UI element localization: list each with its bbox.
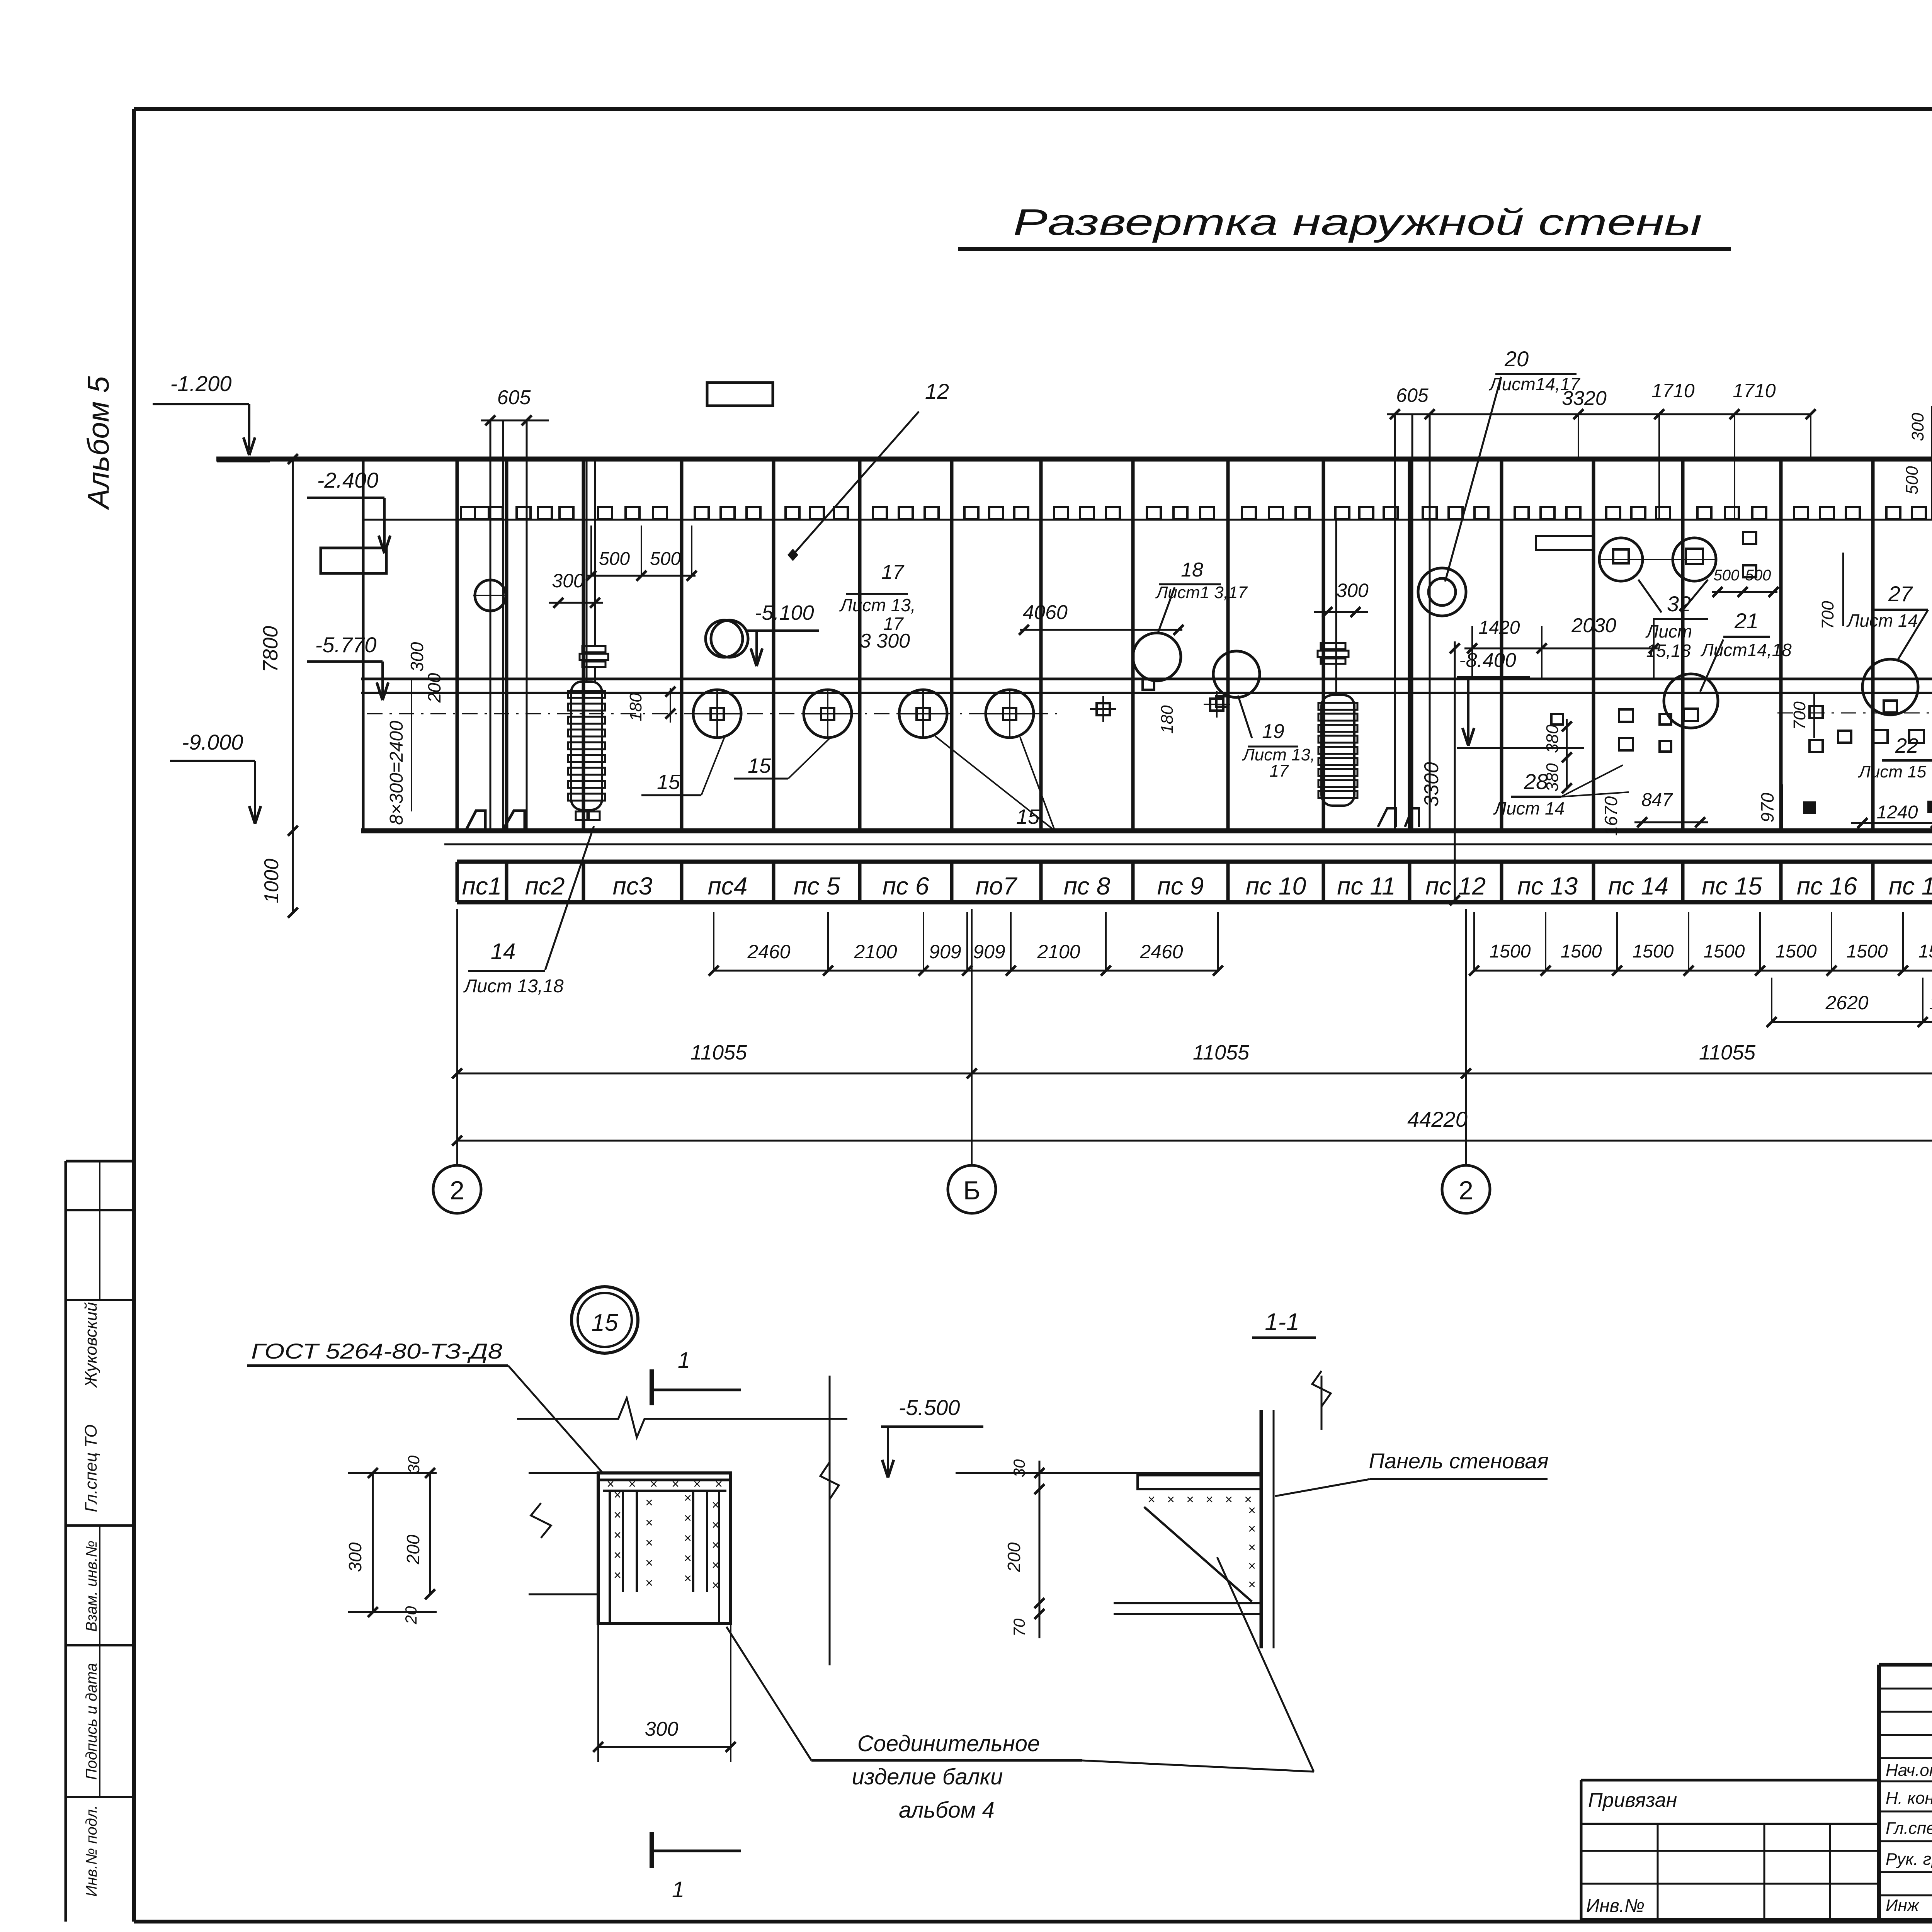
svg-text:пс 10: пс 10 [1246,872,1306,900]
svg-text:альбом 4: альбом 4 [899,1798,995,1823]
svg-text:3 300: 3 300 [860,630,910,652]
svg-text:4060: 4060 [1023,601,1068,624]
svg-text:×: × [712,1518,719,1532]
svg-text:-5.100: -5.100 [755,601,814,624]
svg-text:2: 2 [450,1176,464,1205]
svg-text:×: × [684,1571,692,1586]
svg-text:пс 13: пс 13 [1517,872,1578,900]
svg-text:×: × [715,1477,723,1492]
svg-text:×: × [614,1528,621,1543]
svg-text:×: × [650,1477,658,1492]
svg-text:×: × [614,1488,621,1502]
svg-text:500: 500 [1903,466,1922,495]
svg-text:пс4: пс4 [708,872,748,900]
svg-text:500: 500 [650,549,681,569]
svg-text:44220: 44220 [1407,1107,1468,1131]
svg-text:2460: 2460 [747,941,790,963]
svg-text:×: × [684,1531,692,1546]
svg-text:Б: Б [963,1176,981,1205]
svg-text:15: 15 [592,1310,618,1336]
svg-text:Соединительное: Соединительное [857,1731,1040,1756]
svg-text:Гл.спец ТО: Гл.спец ТО [82,1424,100,1512]
svg-text:Лист 13,18: Лист 13,18 [463,976,563,997]
svg-text:×: × [645,1556,653,1570]
svg-text:909: 909 [929,941,961,963]
svg-text:×: × [1248,1522,1256,1536]
svg-text:1500: 1500 [1561,941,1602,962]
svg-text:Рук. гр.: Рук. гр. [1886,1850,1932,1869]
svg-text:30: 30 [1010,1459,1028,1477]
svg-text:17: 17 [881,561,905,583]
svg-text:2100: 2100 [854,941,897,963]
svg-text:-5.500: -5.500 [899,1395,960,1420]
svg-text:Инв.№ подл.: Инв.№ подл. [83,1805,100,1896]
svg-text:1000: 1000 [260,859,283,903]
svg-text:изделие балки: изделие балки [852,1764,1003,1789]
svg-text:Альбом 5: Альбом 5 [81,376,115,510]
svg-text:14: 14 [491,939,516,964]
svg-text:-9.000: -9.000 [182,730,243,754]
svg-text:3320: 3320 [1562,387,1607,410]
svg-text:пс 9: пс 9 [1157,872,1204,900]
svg-text:300: 300 [345,1542,365,1572]
svg-text:300: 300 [407,642,427,672]
svg-text:Нач.отд: Нач.отд [1886,1761,1932,1780]
svg-text:пс 16: пс 16 [1797,872,1857,900]
svg-text:11055: 11055 [1193,1041,1250,1064]
svg-text:700: 700 [1790,701,1809,730]
svg-text:300: 300 [1908,413,1927,441]
svg-text:Подпись и дата: Подпись и дата [83,1663,100,1780]
svg-text:-1.200: -1.200 [170,371,232,396]
svg-text:Лист 14: Лист 14 [1846,611,1918,631]
svg-text:×: × [1186,1492,1194,1507]
svg-text:×: × [607,1477,614,1492]
svg-text:7800: 7800 [259,626,282,672]
svg-text:пс1: пс1 [462,872,502,900]
svg-text:Жуковский: Жуковский [82,1302,100,1388]
svg-text:×: × [684,1551,692,1566]
svg-text:1500: 1500 [1704,941,1745,962]
svg-text:2620: 2620 [1825,992,1868,1014]
svg-text:пс 15: пс 15 [1702,872,1762,900]
svg-text:×: × [614,1568,621,1583]
svg-text:Взам. инв.№: Взам. инв.№ [83,1541,100,1632]
svg-text:Лист 14: Лист 14 [1493,798,1565,818]
svg-text:Лист 15: Лист 15 [1858,762,1927,781]
svg-text:×: × [684,1491,692,1505]
svg-text:пс 6: пс 6 [883,872,929,900]
svg-text:8×300=2400: 8×300=2400 [386,721,407,825]
svg-text:12: 12 [925,379,949,403]
svg-text:2: 2 [1459,1176,1473,1205]
svg-text:18: 18 [1181,559,1203,581]
svg-text:×: × [1206,1492,1213,1507]
svg-text:Привязан: Привязан [1588,1789,1677,1811]
svg-text:605: 605 [1396,384,1429,406]
svg-text:2100: 2100 [1037,941,1080,963]
svg-text:×: × [712,1538,719,1553]
svg-text:500: 500 [1745,567,1771,584]
svg-text:17: 17 [1270,762,1289,781]
svg-text:1500: 1500 [1918,941,1932,962]
svg-text:пс 17: пс 17 [1889,872,1932,900]
svg-text:20: 20 [402,1606,420,1624]
svg-text:×: × [712,1498,719,1512]
svg-text:180: 180 [1158,705,1177,734]
svg-text:500: 500 [1714,567,1740,584]
svg-text:Лист14,18: Лист14,18 [1700,640,1792,660]
svg-text:×: × [1248,1540,1256,1555]
svg-text:×: × [1148,1492,1155,1507]
svg-text:300: 300 [645,1718,679,1740]
svg-text:21: 21 [1734,609,1759,633]
svg-text:-8.400: -8.400 [1459,649,1516,672]
svg-text:Н. контр: Н. контр [1886,1789,1932,1808]
svg-text:2460: 2460 [1139,941,1183,963]
svg-text:15: 15 [657,770,680,794]
svg-text:Лист 13,: Лист 13, [839,595,915,615]
svg-text:380: 380 [1543,724,1562,753]
svg-text:×: × [712,1578,719,1593]
svg-text:×: × [645,1515,653,1530]
svg-text:200: 200 [424,673,444,703]
svg-text:пс 11: пс 11 [1337,872,1395,900]
svg-text:70: 70 [1010,1618,1028,1636]
svg-text:847: 847 [1641,790,1673,810]
svg-text:200: 200 [1004,1542,1024,1572]
svg-text:пс 8: пс 8 [1064,872,1111,900]
svg-text:1060: 1060 [1929,992,1932,1014]
svg-text:1710: 1710 [1651,380,1694,401]
svg-text:1420: 1420 [1479,617,1520,638]
svg-text:Гл.спец.: Гл.спец. [1886,1819,1932,1838]
svg-text:30: 30 [405,1455,423,1473]
svg-text:20: 20 [1504,347,1529,371]
svg-text:27: 27 [1888,582,1913,606]
svg-text:×: × [1248,1503,1256,1518]
svg-text:Инв.№: Инв.№ [1586,1896,1645,1916]
svg-text:-2.400: -2.400 [317,468,379,492]
svg-text:11055: 11055 [690,1041,747,1064]
svg-text:700: 700 [1818,601,1837,629]
svg-text:200: 200 [403,1534,423,1565]
svg-text:Панель стеновая: Панель стеновая [1369,1449,1548,1473]
svg-text:×: × [645,1536,653,1550]
svg-text:11055: 11055 [1699,1041,1756,1064]
svg-text:970: 970 [1757,793,1777,822]
svg-text:Развертка наружной стены: Развертка наружной стены [1013,202,1702,243]
svg-text:605: 605 [497,386,531,409]
svg-text:1: 1 [678,1348,690,1373]
svg-text:пс 5: пс 5 [794,872,840,900]
svg-text:1710: 1710 [1733,380,1776,401]
svg-text:300: 300 [552,570,584,592]
svg-text:Лист: Лист [1645,621,1692,641]
svg-text:500: 500 [599,549,630,569]
svg-text:пс3: пс3 [613,872,653,900]
svg-text:1500: 1500 [1847,941,1888,962]
svg-text:×: × [712,1558,719,1573]
svg-text:×: × [628,1477,636,1492]
svg-text:2030: 2030 [1571,614,1616,637]
svg-text:19: 19 [1262,720,1284,743]
svg-text:380: 380 [1543,763,1562,792]
svg-text:Лист1 3,17: Лист1 3,17 [1155,583,1248,602]
svg-text:×: × [1248,1577,1256,1592]
svg-text:пс 14: пс 14 [1608,872,1668,900]
svg-text:Инж: Инж [1886,1896,1920,1915]
svg-text:1: 1 [672,1877,684,1902]
svg-text:×: × [1248,1559,1256,1573]
svg-text:по7: по7 [976,872,1018,900]
svg-text:×: × [672,1477,679,1492]
svg-text:180: 180 [626,693,645,721]
svg-text:1670: 1670 [1601,796,1621,836]
svg-text:ГОСТ 5264-80-ТЗ-Д8: ГОСТ 5264-80-ТЗ-Д8 [251,1339,502,1363]
svg-text:22: 22 [1895,734,1918,757]
svg-text:пс2: пс2 [525,872,565,900]
svg-text:×: × [645,1495,653,1510]
svg-text:1500: 1500 [1490,941,1531,962]
svg-text:1-1: 1-1 [1265,1309,1299,1335]
svg-text:3300: 3300 [1420,762,1443,807]
svg-text:×: × [614,1548,621,1563]
svg-text:-5.770: -5.770 [315,633,377,657]
svg-text:×: × [693,1477,701,1492]
svg-text:×: × [1225,1492,1233,1507]
svg-text:×: × [684,1511,692,1526]
svg-text:15: 15 [748,754,771,777]
svg-text:909: 909 [973,941,1005,963]
svg-text:300: 300 [1336,580,1369,601]
svg-text:×: × [614,1508,621,1522]
svg-text:1500: 1500 [1633,941,1674,962]
svg-text:1240: 1240 [1877,802,1918,823]
svg-text:1500: 1500 [1776,941,1817,962]
svg-text:×: × [1167,1492,1175,1507]
svg-text:×: × [645,1576,653,1590]
